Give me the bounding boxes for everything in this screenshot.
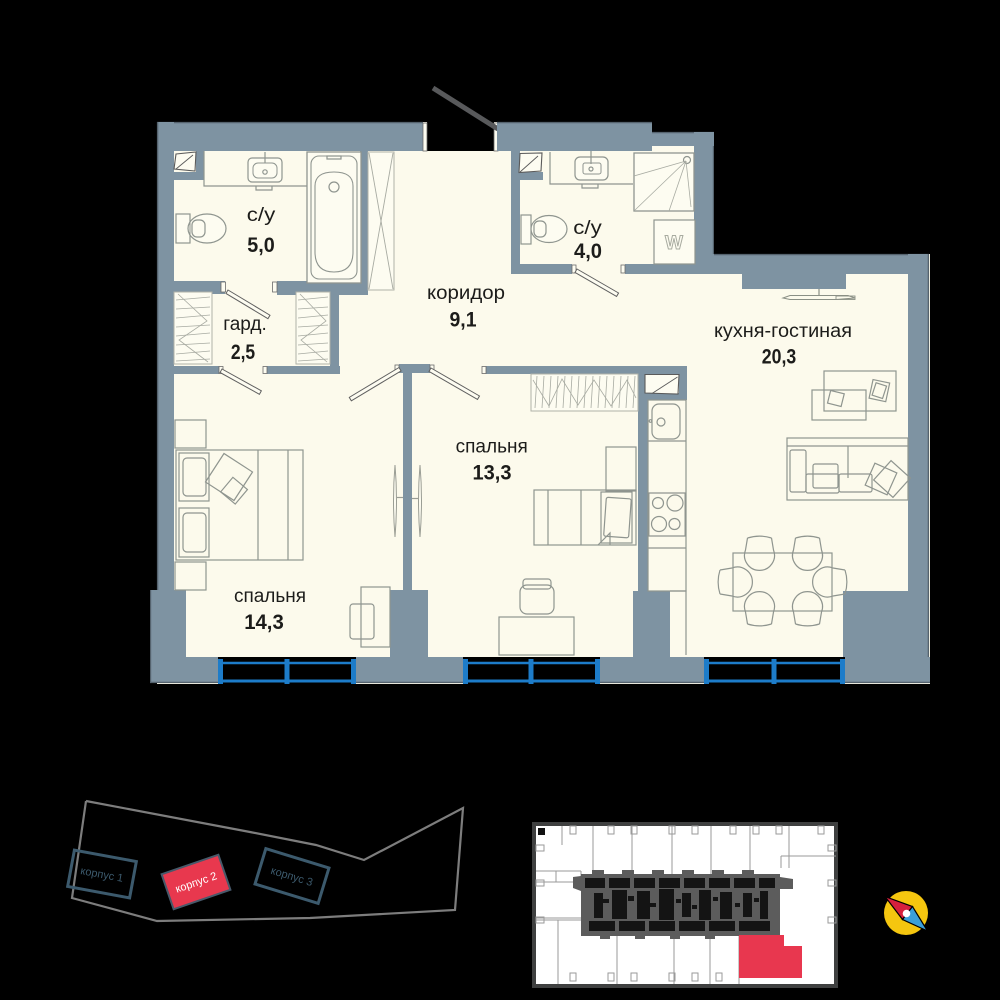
svg-text:W: W <box>665 233 683 254</box>
svg-text:4,0: 4,0 <box>574 239 602 263</box>
svg-text:2,5: 2,5 <box>231 340 255 364</box>
svg-text:5,0: 5,0 <box>247 233 275 257</box>
svg-text:с/у: с/у <box>247 205 276 226</box>
svg-text:9,1: 9,1 <box>450 308 477 332</box>
svg-text:спальня: спальня <box>234 586 306 607</box>
svg-text:кухня-гостиная: кухня-гостиная <box>714 321 852 342</box>
svg-text:14,3: 14,3 <box>244 610 284 634</box>
svg-text:13,3: 13,3 <box>473 461 512 485</box>
svg-text:спальня: спальня <box>456 437 528 458</box>
svg-text:с/у: с/у <box>573 218 602 239</box>
svg-text:коридор: коридор <box>427 283 505 304</box>
svg-text:20,3: 20,3 <box>762 345 796 369</box>
svg-text:гард.: гард. <box>223 314 267 335</box>
